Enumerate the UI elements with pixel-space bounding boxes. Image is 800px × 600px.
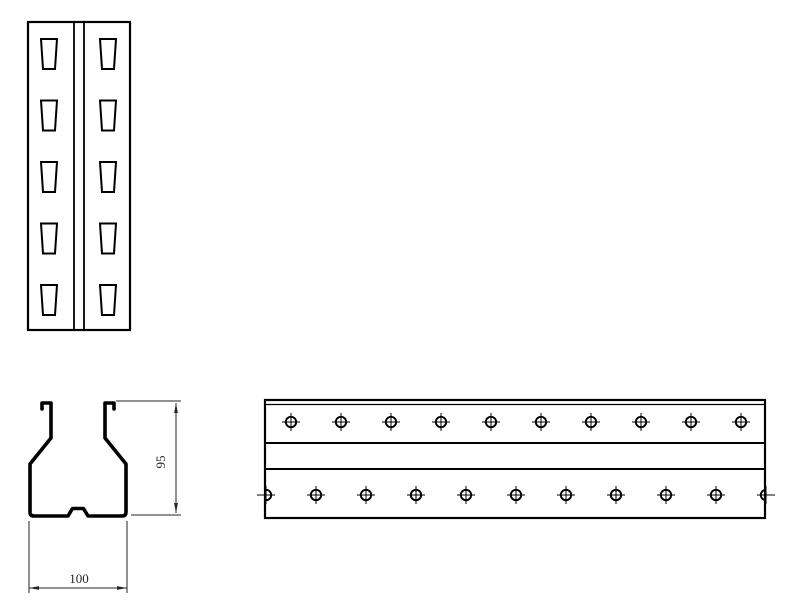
dimension-arrowhead <box>117 586 127 590</box>
punched-slot <box>100 39 116 69</box>
upright-front-view <box>28 22 130 330</box>
punched-slot <box>41 162 57 192</box>
dimension-arrowhead <box>174 503 178 513</box>
punched-slot <box>100 101 116 131</box>
punched-slot <box>41 285 57 315</box>
dimension-arrowhead <box>29 586 39 590</box>
upright-section-profile <box>30 403 126 516</box>
punched-slot <box>100 224 116 254</box>
dimension-arrowhead <box>174 403 178 413</box>
punched-slot <box>100 162 116 192</box>
punched-slot <box>100 285 116 315</box>
punched-slot <box>41 101 57 131</box>
punched-slot <box>41 224 57 254</box>
punched-slot <box>41 39 57 69</box>
technical-drawing-canvas: 95 100 <box>0 0 800 600</box>
dimension-height-label: 95 <box>153 456 168 469</box>
upright-section-view: 95 100 <box>29 401 181 593</box>
beam-side-view <box>257 400 775 518</box>
drawing-svg: 95 100 <box>0 0 800 600</box>
dimension-width-label: 100 <box>69 571 89 586</box>
